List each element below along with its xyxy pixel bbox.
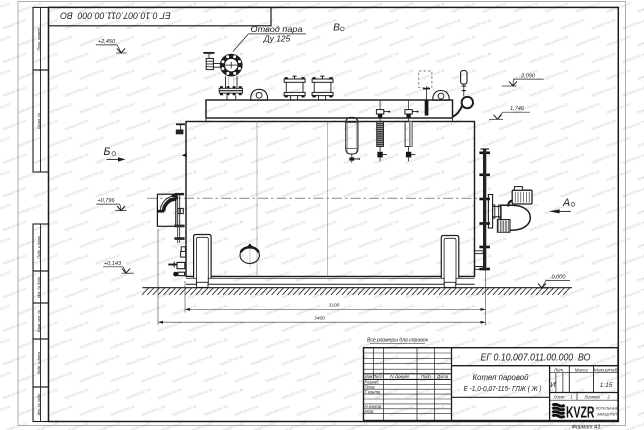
svg-text:Все размеры для справок: Все размеры для справок — [367, 338, 429, 344]
svg-text:Лит.: Лит. — [553, 367, 564, 372]
svg-text:Б: Б — [104, 146, 111, 158]
svg-text:Изм: Изм — [365, 374, 373, 379]
svg-text:Котел паровой: Котел паровой — [473, 373, 530, 382]
svg-text:Инв. № подл.: Инв. № подл. — [37, 393, 41, 415]
svg-text:ЕГ 0.10.007.011.00.000 ВО: ЕГ 0.10.007.011.00.000 ВО — [481, 353, 591, 364]
svg-text:Е -1,0-0,07-115- ГЛЖ ( Ж ): Е -1,0-0,07-115- ГЛЖ ( Ж ) — [464, 384, 542, 393]
svg-text:1: 1 — [570, 395, 572, 400]
svg-text:Ду 125: Ду 125 — [263, 33, 291, 43]
svg-text:Т.контр: Т.контр — [365, 390, 381, 395]
svg-text:В: В — [333, 22, 340, 33]
svg-text:Масса: Масса — [575, 367, 589, 372]
svg-text:Листов: Листов — [583, 395, 600, 400]
svg-text:+0,143: +0,143 — [104, 261, 122, 267]
svg-text:Инв. № дубл.: Инв. № дубл. — [37, 276, 41, 298]
svg-text:+0,796: +0,796 — [97, 198, 115, 204]
svg-text:N докум.: N докум. — [390, 374, 410, 379]
svg-text:И: И — [550, 380, 556, 389]
svg-text:Утв.: Утв. — [365, 409, 375, 414]
svg-text:ЗАВОД РЭП: ЗАВОД РЭП — [597, 413, 618, 417]
svg-text:Взам. инв. №: Взам. инв. № — [37, 310, 41, 332]
svg-text:А: А — [562, 197, 570, 209]
svg-text:Подп: Подп — [421, 374, 432, 379]
svg-text:3100: 3100 — [329, 303, 340, 309]
svg-text:Подп. и дата: Подп. и дата — [37, 352, 41, 375]
svg-text:KVZR: KVZR — [566, 405, 595, 422]
svg-text:+2,450: +2,450 — [98, 39, 116, 45]
svg-text:Подп. и дата: Подп. и дата — [37, 236, 41, 259]
svg-text:Перв. примен.: Перв. примен. — [37, 27, 41, 51]
svg-text:Масштаб: Масштаб — [594, 367, 619, 372]
svg-text:Справ. №: Справ. № — [37, 113, 41, 129]
svg-text:Лист: Лист — [553, 395, 565, 400]
svg-text:Формат А3: Формат А3 — [572, 425, 600, 430]
svg-text:3400: 3400 — [314, 315, 325, 321]
svg-text:ЕГ 0.10.007.011.00.000 ВО: ЕГ 0.10.007.011.00.000 ВО — [60, 10, 171, 20]
svg-text:1:15: 1:15 — [600, 382, 613, 389]
svg-text:2,090: 2,090 — [520, 73, 536, 79]
svg-text:Лист: Лист — [372, 374, 384, 379]
svg-text:Дата: Дата — [436, 374, 449, 379]
svg-text:1,746: 1,746 — [510, 106, 525, 112]
svg-text:КОТЕЛЬНЫЙ: КОТЕЛЬНЫЙ — [596, 407, 619, 411]
svg-text:0,000: 0,000 — [552, 275, 567, 281]
